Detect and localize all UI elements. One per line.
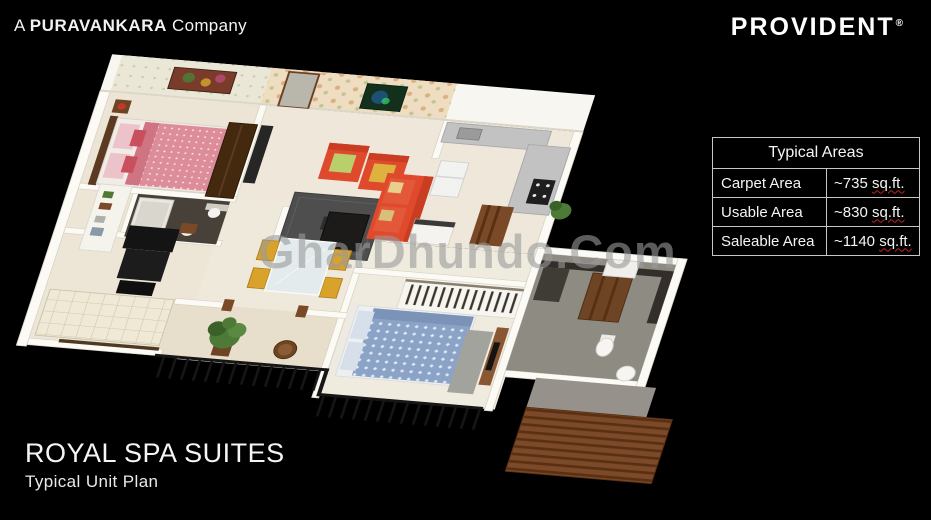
provident-wordmark: PROVIDENT — [731, 13, 895, 41]
area-unit: sq.ft. — [872, 175, 905, 192]
logo-prefix: A — [14, 16, 25, 35]
project-title: ROYAL SPA SUITES — [25, 438, 285, 469]
area-value: ~1140 sq.ft. — [827, 227, 920, 256]
table-row: Carpet Area ~735 sq.ft. — [713, 169, 920, 198]
area-number: ~1140 — [834, 233, 875, 250]
table-title: Typical Areas — [713, 138, 920, 169]
provident-logo: PROVIDENT® — [731, 13, 903, 42]
project-subtitle: Typical Unit Plan — [25, 472, 285, 492]
registered-trademark-symbol: ® — [896, 18, 903, 29]
table-header-row: Typical Areas — [713, 138, 920, 169]
area-unit: sq.ft. — [879, 233, 912, 250]
table-row: Saleable Area ~1140 sq.ft. — [713, 227, 920, 256]
typical-areas-table: Typical Areas Carpet Area ~735 sq.ft. Us… — [712, 137, 920, 256]
logo-suffix: Company — [172, 16, 247, 35]
area-label: Carpet Area — [713, 169, 827, 198]
area-value: ~735 sq.ft. — [827, 169, 920, 198]
wooden-deck — [505, 378, 682, 484]
slide-background: A PURAVANKARA Company PROVIDENT® Typical… — [0, 0, 931, 520]
area-unit: sq.ft. — [872, 204, 905, 221]
living-painting — [360, 84, 408, 112]
area-value: ~830 sq.ft. — [827, 198, 920, 227]
bedroom-painting — [168, 67, 237, 94]
area-number: ~735 — [834, 175, 868, 192]
puravankara-logo: A PURAVANKARA Company — [14, 16, 247, 36]
table-row: Usable Area ~830 sq.ft. — [713, 198, 920, 227]
area-label: Saleable Area — [713, 227, 827, 256]
area-label: Usable Area — [713, 198, 827, 227]
project-titles: ROYAL SPA SUITES Typical Unit Plan — [25, 438, 285, 492]
logo-brand-name: PURAVANKARA — [30, 16, 167, 35]
area-number: ~830 — [834, 204, 868, 221]
